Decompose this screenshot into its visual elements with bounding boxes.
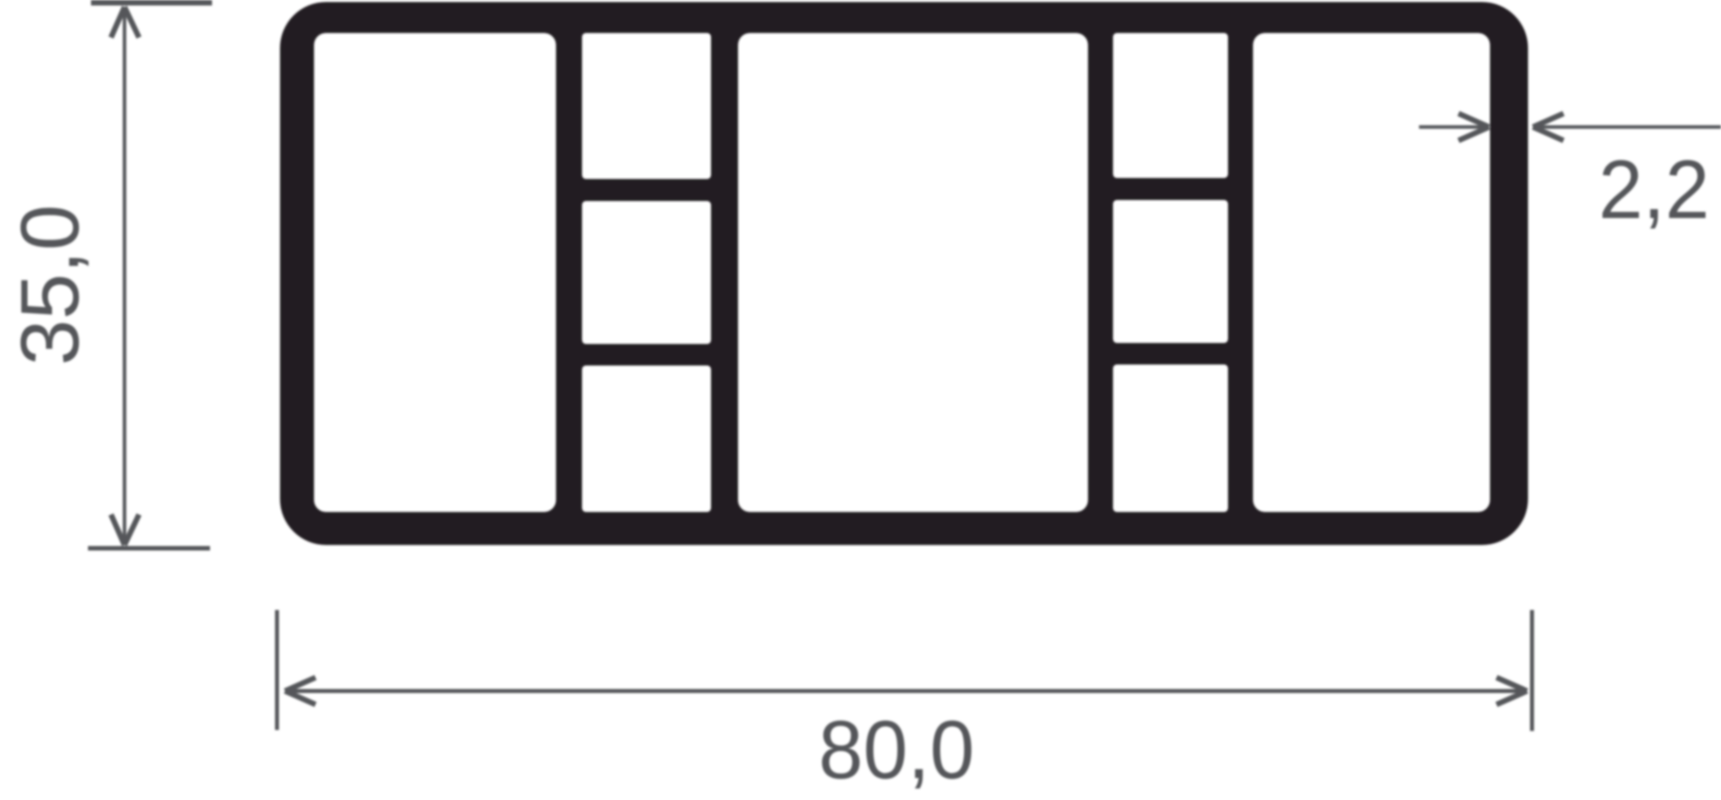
svg-text:2,2: 2,2 (1599, 143, 1710, 236)
svg-text:80,0: 80,0 (819, 703, 975, 796)
svg-text:35,0: 35,0 (3, 205, 96, 366)
